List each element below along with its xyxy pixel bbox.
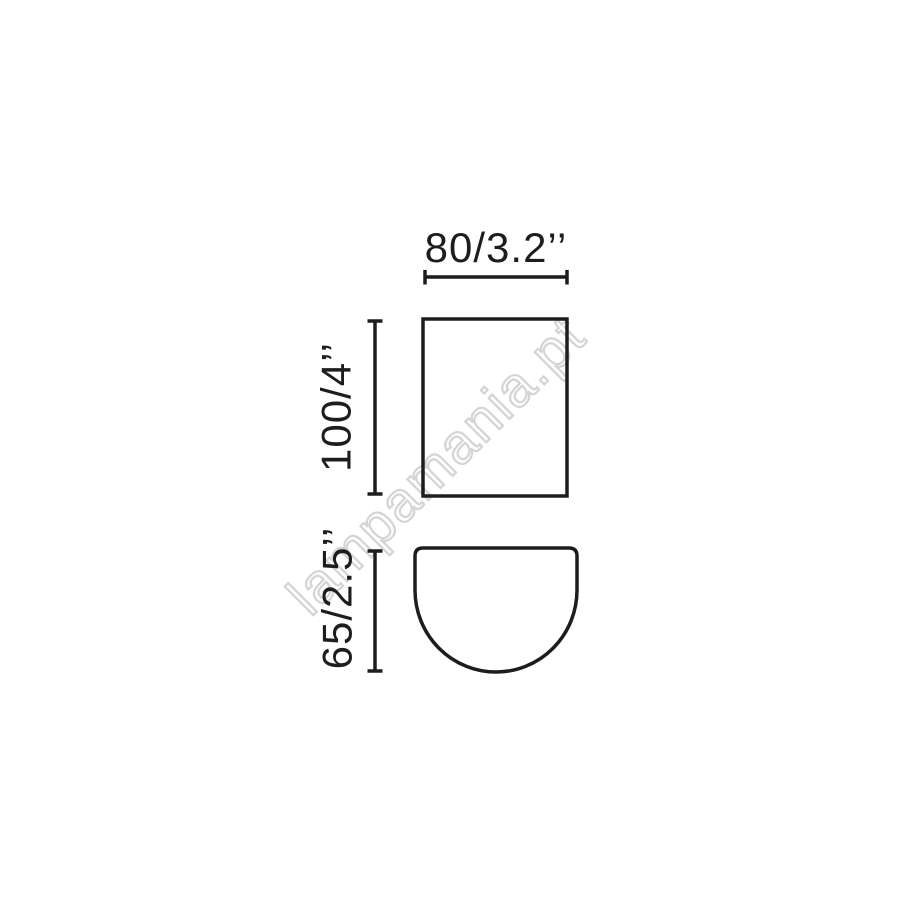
- height-dimension-label: 100/4’’: [313, 342, 360, 472]
- depth-dimension-label: 65/2.5’’: [314, 527, 361, 670]
- side-view-outline: [415, 548, 577, 672]
- width-dimension-line: [425, 270, 567, 285]
- width-dimension-label: 80/3.2’’: [425, 224, 568, 271]
- dimension-drawing: lampamania.pt: [0, 0, 900, 900]
- product-dimension-diagram: lampamania.pt: [0, 0, 900, 900]
- height-dimension-line: [368, 321, 383, 494]
